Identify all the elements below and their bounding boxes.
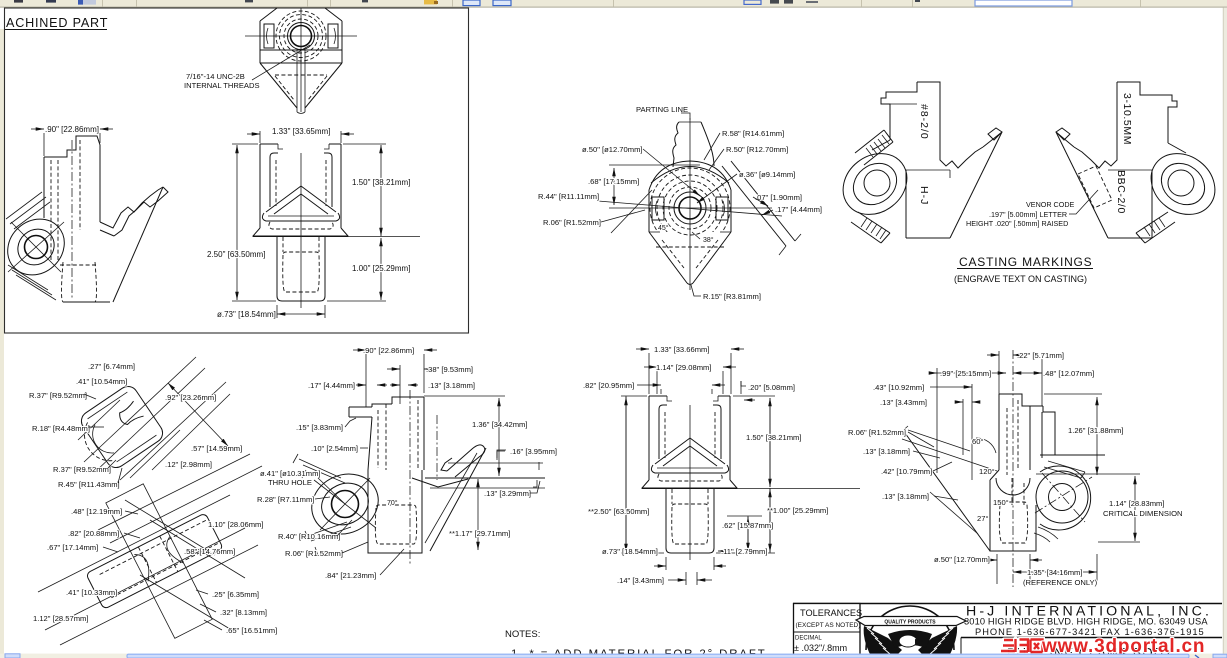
svg-text:3010 HIGH RIDGE BLVD. HIGH RID: 3010 HIGH RIDGE BLVD. HIGH RIDGE, MO. 63… xyxy=(964,617,1208,627)
svg-text:.41" [10.33mm]: .41" [10.33mm] xyxy=(66,588,117,597)
svg-text:ACHINED PART: ACHINED PART xyxy=(6,16,108,30)
svg-text:DECIMAL: DECIMAL xyxy=(795,636,822,642)
svg-text:R.06" [R1.52mm]: R.06" [R1.52mm] xyxy=(285,549,343,558)
svg-text:**1.17" [29.71mm]: **1.17" [29.71mm] xyxy=(449,529,510,538)
svg-text:BBC-2/0: BBC-2/0 xyxy=(1115,170,1127,214)
svg-text:.197" [5.00mm] LETTER: .197" [5.00mm] LETTER xyxy=(989,210,1067,219)
svg-text:.62" [15.87mm]: .62" [15.87mm] xyxy=(722,521,773,530)
svg-text:.90" [22.86mm]: .90" [22.86mm] xyxy=(363,346,414,355)
svg-text:ø.73" [18.54mm]: ø.73" [18.54mm] xyxy=(602,547,658,556)
svg-text:.15" [3.83mm]: .15" [3.83mm] xyxy=(296,423,343,432)
svg-text:27°: 27° xyxy=(977,514,988,523)
svg-text:45°: 45° xyxy=(658,224,669,232)
svg-text:.17" [4.44mm]: .17" [4.44mm] xyxy=(775,205,822,214)
svg-text:.90" [22.86mm]: .90" [22.86mm] xyxy=(45,125,99,134)
svg-text:TOLERANCES: TOLERANCES xyxy=(800,608,862,618)
svg-text:.58" [14.76mm]: .58" [14.76mm] xyxy=(184,547,235,556)
svg-text:R.40" [R10.16mm]: R.40" [R10.16mm] xyxy=(278,532,340,541)
svg-text:QUALITY PRODUCTS: QUALITY PRODUCTS xyxy=(884,620,936,626)
svg-text:1.33" [33.65mm]: 1.33" [33.65mm] xyxy=(272,127,330,136)
svg-text:.11" [2.79mm]: .11" [2.79mm] xyxy=(721,547,767,556)
svg-text:1.14" [29.08mm]: 1.14" [29.08mm] xyxy=(656,363,711,372)
svg-text:**1.00" [25.29mm]: **1.00" [25.29mm] xyxy=(767,506,828,515)
svg-text:(EXCEPT AS NOTED): (EXCEPT AS NOTED) xyxy=(796,622,861,629)
svg-text:1.26" [31.88mm]: 1.26" [31.88mm] xyxy=(1068,426,1123,435)
svg-text:R.37" [R9.52mm]: R.37" [R9.52mm] xyxy=(53,465,111,474)
svg-text:R.28" [R7.11mm]: R.28" [R7.11mm] xyxy=(257,495,314,504)
svg-text:1.35" [34.16mm]: 1.35" [34.16mm] xyxy=(1027,568,1082,577)
svg-text:70°: 70° xyxy=(387,499,398,507)
svg-text:.48" [12.19mm]: .48" [12.19mm] xyxy=(71,507,122,516)
svg-text:PARTING LINE: PARTING LINE xyxy=(636,105,688,114)
svg-text:.92" [23.26mm]: .92" [23.26mm] xyxy=(165,393,216,402)
svg-text:2.50" [63.50mm]: 2.50" [63.50mm] xyxy=(207,250,265,259)
svg-text:.41" [10.54mm]: .41" [10.54mm] xyxy=(76,377,127,386)
svg-text:.67" [17.14mm]: .67" [17.14mm] xyxy=(47,543,98,552)
svg-text:ø.36" [ø9.14mm]: ø.36" [ø9.14mm] xyxy=(739,170,795,179)
svg-text:1.50" [38.21mm]: 1.50" [38.21mm] xyxy=(352,178,410,187)
svg-text:(ENGRAVE TEXT ON CASTING): (ENGRAVE TEXT ON CASTING) xyxy=(954,274,1087,284)
svg-text:THRU HOLE: THRU HOLE xyxy=(268,478,312,487)
svg-text:.13" [3.18mm]: .13" [3.18mm] xyxy=(882,492,929,501)
svg-text:CASTING MARKINGS: CASTING MARKINGS xyxy=(959,255,1092,269)
svg-text:.07" [1.90mm]: .07" [1.90mm] xyxy=(755,193,802,202)
svg-text:.82" [20.88mm]: .82" [20.88mm] xyxy=(68,529,119,538)
svg-text:.13" [3.29mm]: .13" [3.29mm] xyxy=(484,489,531,498)
svg-text:(REFERENCE ONLY): (REFERENCE ONLY) xyxy=(1023,578,1098,587)
svg-text:.42" [10.79mm]: .42" [10.79mm] xyxy=(881,467,932,476)
svg-text:38°: 38° xyxy=(703,236,714,244)
svg-text:.99" [25.15mm]: .99" [25.15mm] xyxy=(940,369,991,378)
svg-text:ø.73" [18.54mm]: ø.73" [18.54mm] xyxy=(217,310,276,319)
svg-text:.12" [2.98mm]: .12" [2.98mm] xyxy=(165,460,212,469)
svg-text:± .032"/.8mm: ± .032"/.8mm xyxy=(794,643,847,653)
svg-text:1.00" [25.29mm]: 1.00" [25.29mm] xyxy=(352,264,410,273)
svg-text:1.12" [28.57mm]: 1.12" [28.57mm] xyxy=(33,614,88,623)
svg-text:150°: 150° xyxy=(993,498,1009,507)
svg-text:.27" [6.74mm]: .27" [6.74mm] xyxy=(88,362,135,371)
svg-text:R.45" [R11.43mm]: R.45" [R11.43mm] xyxy=(58,480,120,489)
svg-text:.13" [3.43mm]: .13" [3.43mm] xyxy=(880,398,927,407)
svg-text:#8-2/0: #8-2/0 xyxy=(918,104,930,140)
svg-text:.48" [12.07mm]: .48" [12.07mm] xyxy=(1043,369,1094,378)
svg-text:ø.50" [ø12.70mm]: ø.50" [ø12.70mm] xyxy=(582,145,643,154)
svg-text:H-J: H-J xyxy=(918,186,930,205)
svg-text:ø.41" [ø10.31mm]: ø.41" [ø10.31mm] xyxy=(260,469,321,478)
svg-text:1.10" [28.06mm]: 1.10" [28.06mm] xyxy=(208,520,263,529)
svg-text:.68" [17.15mm]: .68" [17.15mm] xyxy=(588,177,639,186)
svg-text:120°: 120° xyxy=(979,467,995,476)
svg-text:CRITICAL DIMENSION: CRITICAL DIMENSION xyxy=(1103,509,1182,518)
svg-text:R.06" [R1.52mm]: R.06" [R1.52mm] xyxy=(848,428,906,437)
svg-text:.22" [5.71mm]: .22" [5.71mm] xyxy=(1017,351,1064,360)
svg-text:.84" [21.23mm]: .84" [21.23mm] xyxy=(325,571,376,580)
svg-text:**2.50" [63.50mm]: **2.50" [63.50mm] xyxy=(588,507,649,516)
svg-text:.32" [8.13mm]: .32" [8.13mm] xyxy=(220,608,267,617)
svg-text:.17" [4.44mm]: .17" [4.44mm] xyxy=(308,381,355,390)
svg-text:R.58" [R14.61mm]: R.58" [R14.61mm] xyxy=(722,129,784,138)
svg-text:3-10.5MM: 3-10.5MM xyxy=(1121,93,1133,145)
svg-text:R.44" [R11.11mm]: R.44" [R11.11mm] xyxy=(538,192,599,201)
svg-text:7/16"-14 UNC-2B: 7/16"-14 UNC-2B xyxy=(186,72,245,81)
svg-text:R.06" [R1.52mm]: R.06" [R1.52mm] xyxy=(543,218,601,227)
svg-text:.38" [9.53mm]: .38" [9.53mm] xyxy=(426,365,473,374)
svg-text:R.37" [R9.52mm]: R.37" [R9.52mm] xyxy=(29,391,87,400)
svg-text:.82" [20.95mm]: .82" [20.95mm] xyxy=(583,381,634,390)
svg-text:1.33" [33.66mm]: 1.33" [33.66mm] xyxy=(654,345,709,354)
svg-text:60°: 60° xyxy=(972,437,983,446)
svg-text:1.50" [38.21mm]: 1.50" [38.21mm] xyxy=(746,433,801,442)
svg-text:NOTES:: NOTES: xyxy=(505,629,540,640)
svg-text:HEIGHT .020" [.50mm] RAISED: HEIGHT .020" [.50mm] RAISED xyxy=(966,219,1068,228)
svg-text:.57" [14.59mm]: .57" [14.59mm] xyxy=(191,444,242,453)
svg-text:VENOR CODE: VENOR CODE xyxy=(1026,200,1075,209)
svg-text:.16" [3.95mm]: .16" [3.95mm] xyxy=(510,447,557,456)
svg-text:INTERNAL THREADS: INTERNAL THREADS xyxy=(184,81,260,90)
svg-text:.65" [16.51mm]: .65" [16.51mm] xyxy=(226,626,277,635)
svg-text:.10" [2.54mm]: .10" [2.54mm] xyxy=(311,444,358,453)
svg-text:ø.50" [12.70mm]: ø.50" [12.70mm] xyxy=(934,555,990,564)
svg-text:R.18" [R4.48mm]: R.18" [R4.48mm] xyxy=(32,424,90,433)
svg-text:.25" [6.35mm]: .25" [6.35mm] xyxy=(212,590,259,599)
svg-text:.43" [10.92mm]: .43" [10.92mm] xyxy=(873,383,924,392)
svg-text:R.50" [R12.70mm]: R.50" [R12.70mm] xyxy=(726,145,788,154)
svg-text:.13" [3.18mm]: .13" [3.18mm] xyxy=(863,447,910,456)
svg-text:R.15" [R3.81mm]: R.15" [R3.81mm] xyxy=(703,292,761,301)
svg-text:.13" [3.18mm]: .13" [3.18mm] xyxy=(428,381,475,390)
svg-text:1.14" [28.83mm]: 1.14" [28.83mm] xyxy=(1109,499,1164,508)
svg-text:.20" [5.08mm]: .20" [5.08mm] xyxy=(748,383,795,392)
svg-text:1.36" [34.42mm]: 1.36" [34.42mm] xyxy=(472,420,527,429)
svg-text:.14" [3.43mm]: .14" [3.43mm] xyxy=(617,576,664,585)
